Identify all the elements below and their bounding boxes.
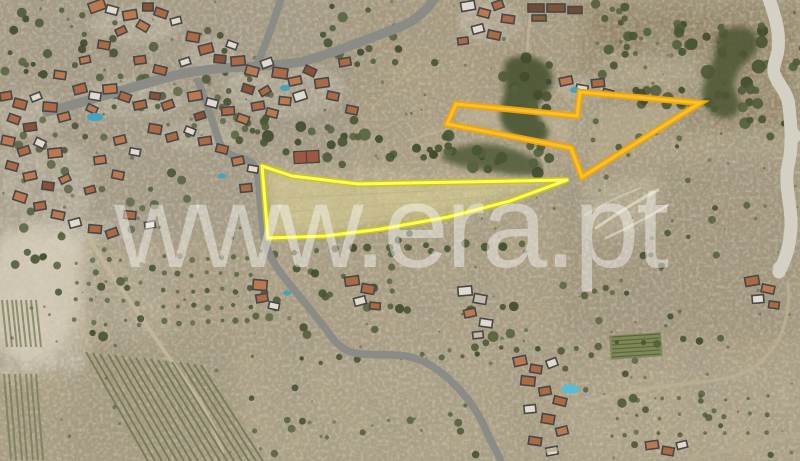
svg-text:www.era.pt: www.era.pt [113, 161, 668, 293]
